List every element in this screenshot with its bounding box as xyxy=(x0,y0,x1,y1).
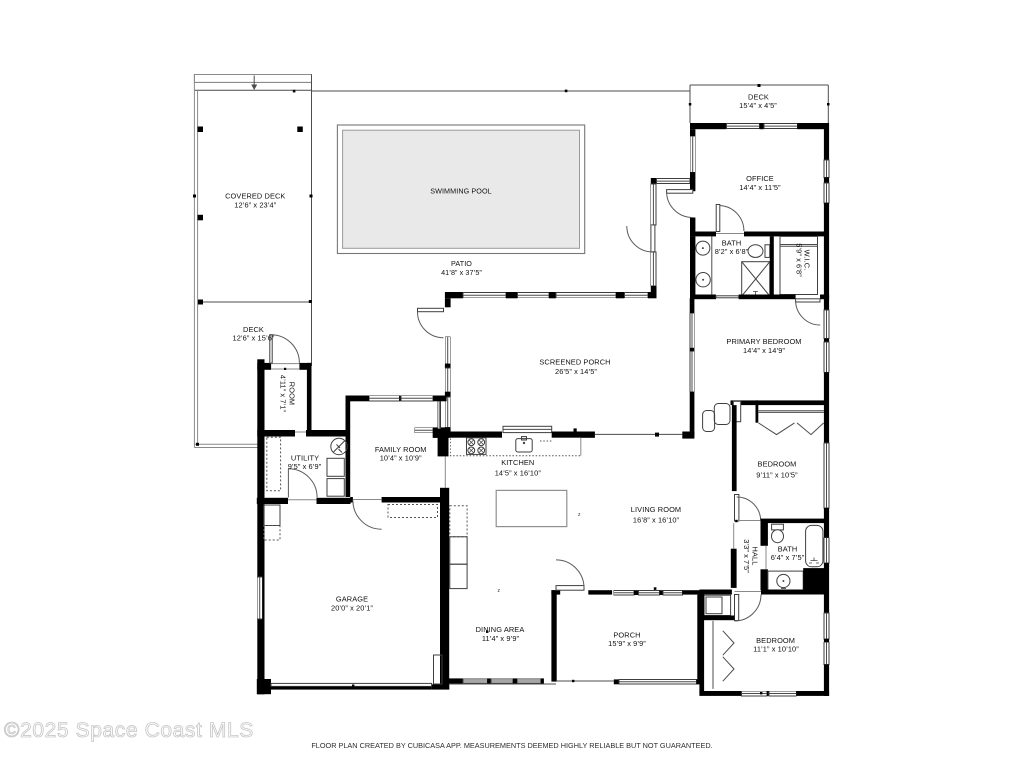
svg-text:5’9” x 6’8”: 5’9” x 6’8” xyxy=(795,243,804,277)
svg-text:©2025 Space Coast MLS: ©2025 Space Coast MLS xyxy=(4,719,254,742)
svg-text:14’5” x 16’10”: 14’5” x 16’10” xyxy=(495,468,542,477)
svg-text:OFFICE: OFFICE xyxy=(746,174,774,183)
svg-text:3’3” x 7’5”: 3’3” x 7’5” xyxy=(742,539,751,573)
svg-text:DECK: DECK xyxy=(748,92,769,101)
svg-text:11’4” x 9’9”: 11’4” x 9’9” xyxy=(482,634,520,643)
svg-text:SCREENED PORCH: SCREENED PORCH xyxy=(539,358,610,367)
svg-text:COVERED DECK: COVERED DECK xyxy=(225,192,285,201)
svg-text:KITCHEN: KITCHEN xyxy=(501,458,534,467)
svg-text:FAMILY ROOM: FAMILY ROOM xyxy=(375,445,427,454)
svg-text:9’5” x 6’9”: 9’5” x 6’9” xyxy=(288,462,322,471)
svg-text:PATIO: PATIO xyxy=(451,259,472,268)
svg-text:26’5” x 14’5”: 26’5” x 14’5” xyxy=(555,367,597,376)
svg-text:FLOOR PLAN CREATED BY CUBICASA: FLOOR PLAN CREATED BY CUBICASA APP. MEAS… xyxy=(311,741,712,750)
svg-text:12’6” x 15’6”: 12’6” x 15’6” xyxy=(233,334,275,343)
svg-text:20’0” x 20’1”: 20’0” x 20’1” xyxy=(331,604,373,613)
svg-text:BEDROOM: BEDROOM xyxy=(758,460,797,469)
svg-text:9’11” x 10’5”: 9’11” x 10’5” xyxy=(756,471,798,480)
svg-text:LIVING ROOM: LIVING ROOM xyxy=(631,505,681,514)
svg-text:15’4” x 4’5”: 15’4” x 4’5” xyxy=(739,101,777,110)
svg-text:UTILITY: UTILITY xyxy=(291,453,319,462)
svg-text:4’11” x 7’1”: 4’11” x 7’1” xyxy=(279,375,288,413)
svg-text:PRIMARY BEDROOM: PRIMARY BEDROOM xyxy=(726,337,801,346)
svg-text:6’4” x 7’5”: 6’4” x 7’5” xyxy=(771,553,805,562)
svg-text:SWIMMING POOL: SWIMMING POOL xyxy=(430,187,492,196)
svg-text:15’9” x 9’9”: 15’9” x 9’9” xyxy=(608,639,646,648)
svg-text:16’8” x 16’10”: 16’8” x 16’10” xyxy=(633,515,680,524)
svg-text:12’6” x 23’4”: 12’6” x 23’4” xyxy=(234,200,276,209)
svg-text:14’4” x 11’5”: 14’4” x 11’5” xyxy=(739,183,781,192)
svg-text:ROOM: ROOM xyxy=(288,382,297,405)
svg-text:8’2” x 6’8”: 8’2” x 6’8” xyxy=(715,247,749,256)
svg-text:11’1” x 10’10”: 11’1” x 10’10” xyxy=(753,644,799,653)
svg-text:41’8” x 37’5”: 41’8” x 37’5” xyxy=(441,268,482,277)
svg-text:GARAGE: GARAGE xyxy=(336,595,368,604)
svg-text:14’4” x 14’9”: 14’4” x 14’9” xyxy=(743,346,785,355)
svg-text:DINING AREA: DINING AREA xyxy=(476,625,525,634)
svg-text:10’4” x 10’9”: 10’4” x 10’9” xyxy=(380,454,422,463)
